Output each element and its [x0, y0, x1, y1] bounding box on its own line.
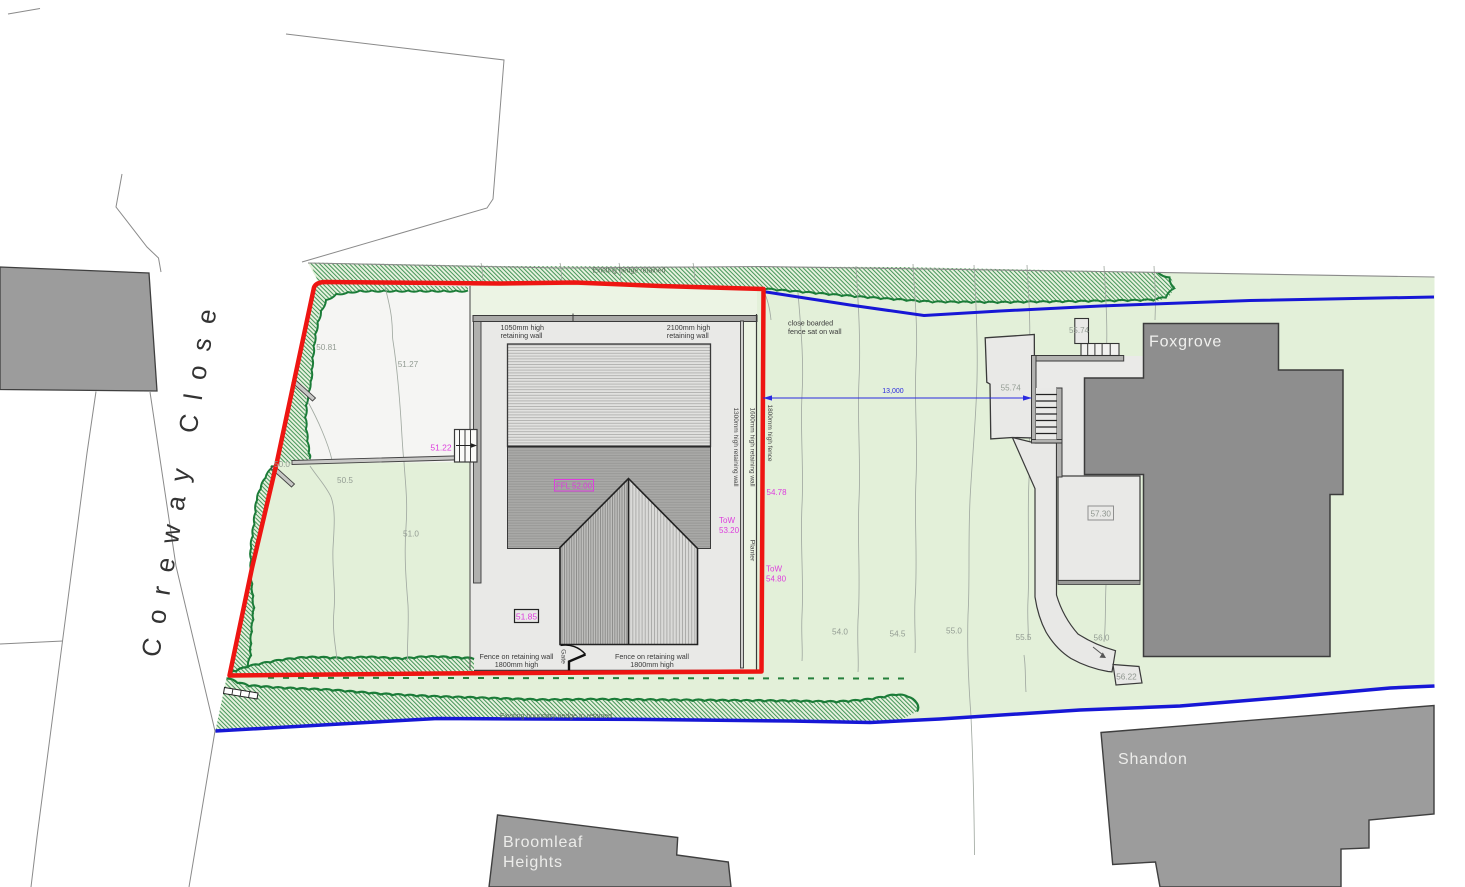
svg-text:51.0: 51.0: [403, 530, 419, 539]
svg-text:51.27: 51.27: [398, 360, 419, 369]
svg-text:13,000: 13,000: [882, 388, 904, 395]
svg-text:55.74: 55.74: [1069, 326, 1090, 335]
svg-text:57.30: 57.30: [1090, 510, 1111, 519]
svg-text:54.78: 54.78: [767, 488, 788, 497]
svg-text:50.0: 50.0: [274, 460, 290, 469]
svg-text:1800mm high: 1800mm high: [630, 660, 674, 669]
svg-text:ToW: ToW: [719, 516, 735, 525]
svg-text:55.0: 55.0: [946, 627, 962, 636]
svg-text:Existing hedge retained: Existing hedge retained: [592, 268, 665, 275]
svg-text:51.22: 51.22: [430, 443, 452, 453]
svg-text:FFL 52.00: FFL 52.00: [556, 482, 593, 491]
svg-text:retaining wall: retaining wall: [667, 331, 709, 340]
svg-text:Foxgrove: Foxgrove: [1149, 334, 1222, 351]
svg-text:50.5: 50.5: [337, 476, 353, 485]
svg-text:fence sat on wall: fence sat on wall: [788, 327, 842, 336]
svg-text:ToW: ToW: [766, 565, 782, 574]
svg-text:Shandon: Shandon: [1118, 751, 1188, 768]
svg-text:retaining wall: retaining wall: [501, 331, 543, 340]
svg-text:Existing boundary hedge to ret: Existing boundary hedge to retained: [500, 713, 612, 720]
svg-text:54.5: 54.5: [890, 630, 906, 639]
svg-text:1600mm high retaining wall: 1600mm high retaining wall: [749, 407, 756, 487]
svg-text:56.22: 56.22: [1116, 673, 1137, 682]
svg-text:1800mm high fence: 1800mm high fence: [766, 404, 773, 461]
svg-text:56.0: 56.0: [1094, 634, 1110, 643]
svg-text:54.0: 54.0: [832, 628, 848, 637]
svg-text:Planter: Planter: [749, 540, 756, 562]
svg-text:50.81: 50.81: [316, 343, 337, 352]
svg-text:1800mm high: 1800mm high: [495, 660, 539, 669]
svg-text:Broomleaf: Broomleaf: [503, 834, 583, 851]
svg-text:55.74: 55.74: [1001, 384, 1022, 393]
svg-text:Heights: Heights: [503, 854, 563, 871]
svg-text:55.5: 55.5: [1016, 633, 1032, 642]
svg-text:53.20: 53.20: [719, 526, 740, 535]
svg-text:54.80: 54.80: [766, 575, 787, 584]
svg-text:51.85: 51.85: [516, 612, 538, 622]
svg-text:Gate: Gate: [560, 649, 567, 664]
svg-text:1300mm high retaining wall: 1300mm high retaining wall: [732, 407, 739, 487]
